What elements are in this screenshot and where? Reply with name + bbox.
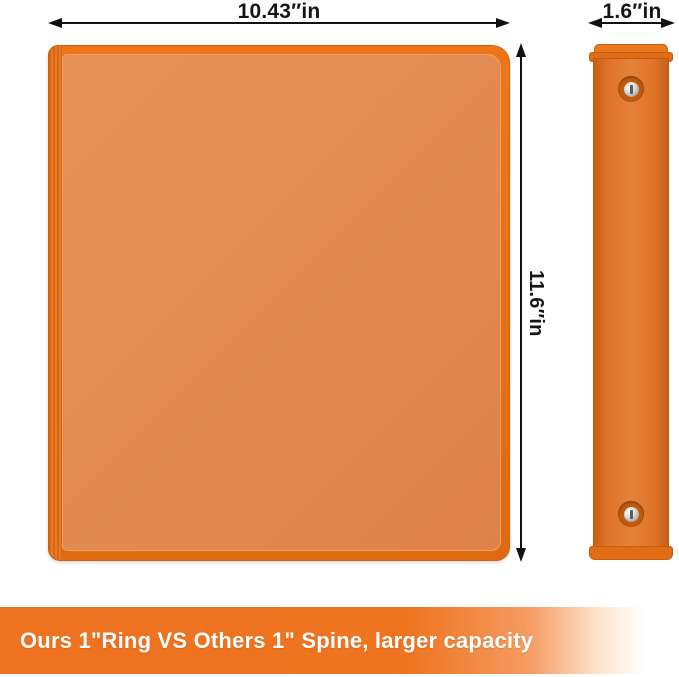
spine-body: [593, 58, 669, 552]
front-height-label: 11.6″in: [524, 45, 547, 562]
binder-front-cover-panel: [62, 54, 501, 551]
arrow-left-head-icon: [588, 18, 602, 28]
rivet-metal-icon: [624, 82, 639, 97]
arrow-shaft: [62, 22, 496, 24]
arrow-right-head-icon: [661, 18, 675, 28]
arrow-shaft: [520, 57, 522, 548]
binder-dimension-diagram: 10.43″in 1.6″in 11.6″in: [0, 0, 679, 677]
spine-rivet-top: [618, 76, 644, 102]
spine-rivet-bottom: [618, 501, 644, 527]
binder-spine-view: [589, 44, 673, 560]
rivet-slot-icon: [630, 510, 633, 519]
spine-width-arrow: [588, 17, 675, 29]
arrow-right-head-icon: [496, 18, 510, 28]
spine-bottom-cap: [589, 546, 673, 560]
arrow-left-head-icon: [48, 18, 62, 28]
arrow-shaft: [602, 22, 661, 24]
binder-front-view: [48, 45, 510, 561]
promo-banner-text: Ours 1"Ring VS Others 1" Spine, larger c…: [0, 628, 533, 654]
binder-hinge-edge: [49, 46, 62, 560]
rivet-metal-icon: [624, 507, 639, 522]
front-width-arrow: [48, 17, 510, 29]
rivet-slot-icon: [630, 85, 633, 94]
promo-banner: Ours 1"Ring VS Others 1" Spine, larger c…: [0, 607, 679, 674]
